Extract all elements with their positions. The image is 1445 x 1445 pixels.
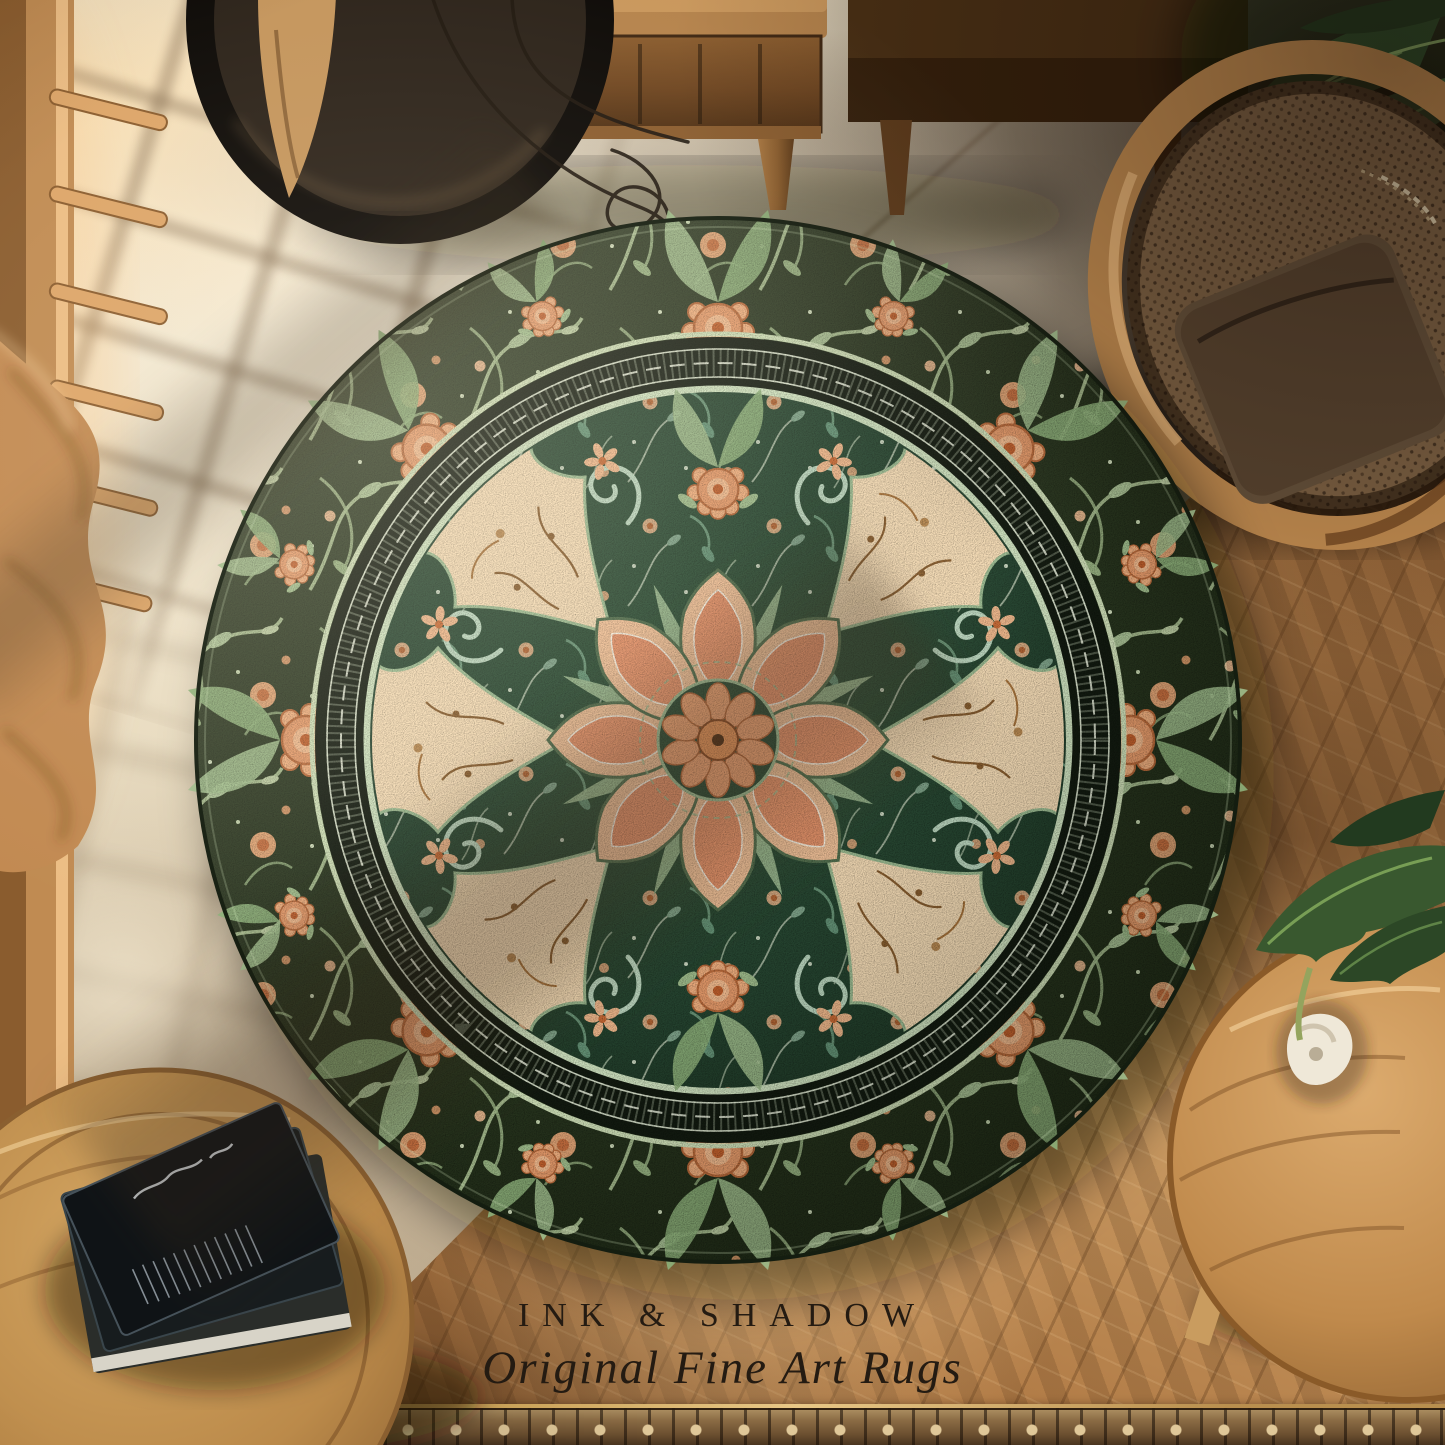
white-dish bbox=[1276, 1000, 1368, 1104]
product-photo-rug-room: INK & SHADOW Original Fine Art Rugs bbox=[0, 0, 1445, 1445]
